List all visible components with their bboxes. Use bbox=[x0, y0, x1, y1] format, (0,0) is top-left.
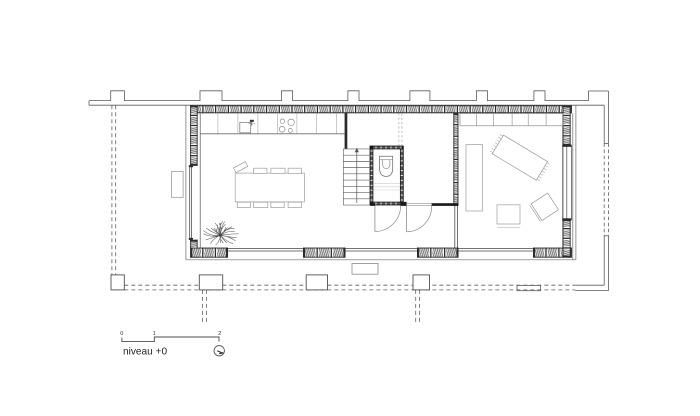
svg-text:1: 1 bbox=[153, 331, 156, 337]
svg-text:2: 2 bbox=[218, 331, 221, 337]
svg-text:niveau +0: niveau +0 bbox=[123, 347, 167, 358]
svg-text:0: 0 bbox=[120, 331, 123, 337]
